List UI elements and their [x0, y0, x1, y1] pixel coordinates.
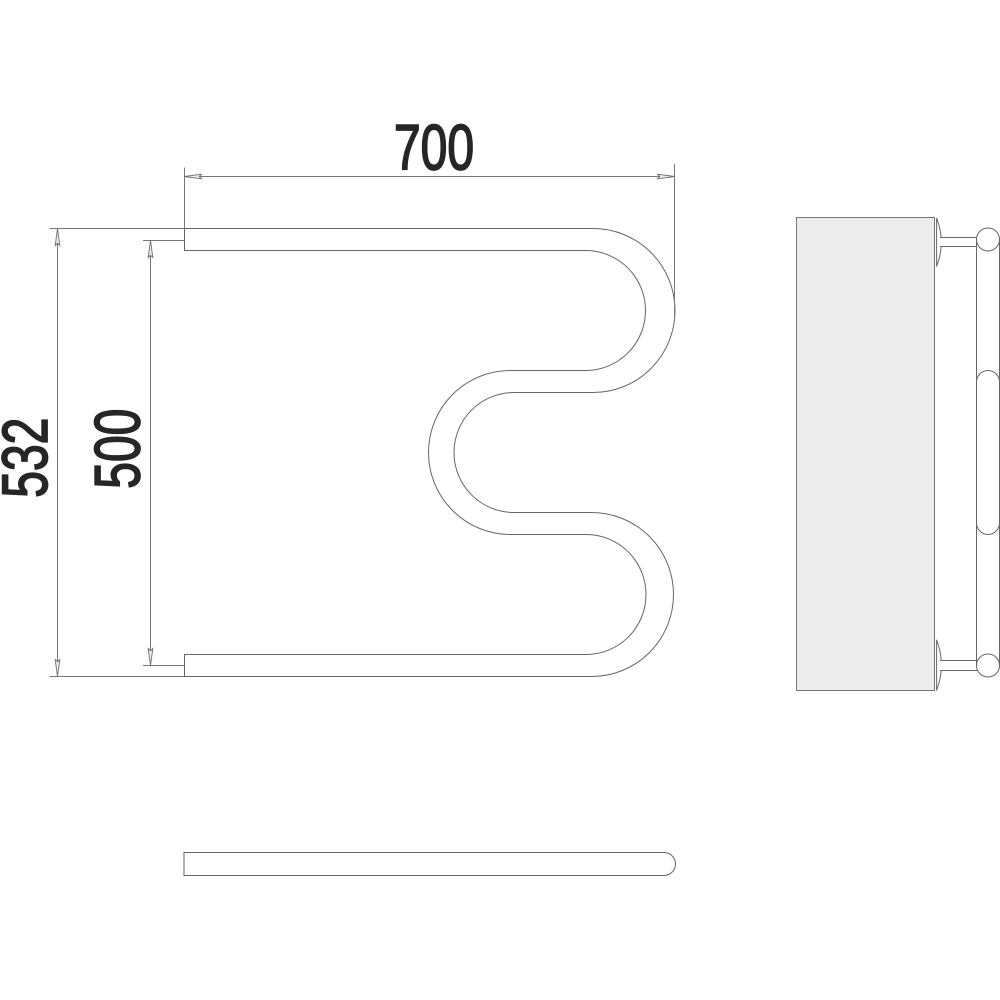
svg-text:532: 532: [0, 418, 60, 498]
svg-text:700: 700: [394, 112, 474, 183]
svg-text:500: 500: [82, 409, 153, 489]
